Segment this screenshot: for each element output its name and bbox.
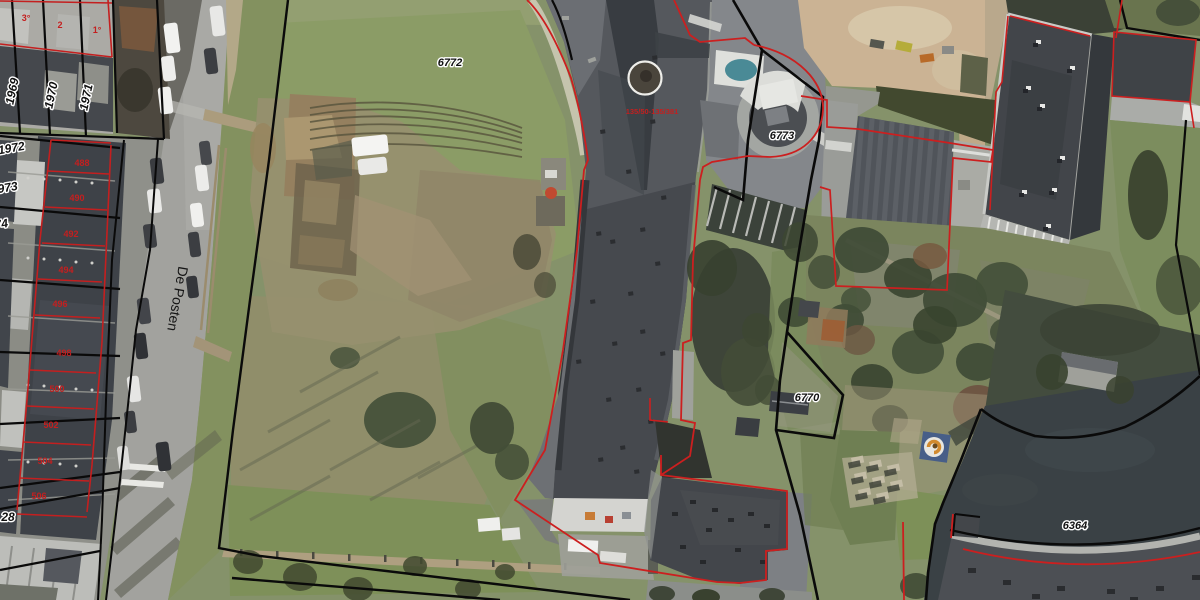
svg-text:1°: 1° xyxy=(93,25,102,35)
svg-text:498: 498 xyxy=(56,348,71,358)
svg-text:3°: 3° xyxy=(22,13,31,23)
svg-text:494: 494 xyxy=(58,265,73,275)
svg-text:6770: 6770 xyxy=(795,392,820,404)
svg-text:502: 502 xyxy=(43,420,58,430)
svg-text:6772: 6772 xyxy=(438,57,462,69)
svg-text:488: 488 xyxy=(74,158,89,168)
svg-text:28: 28 xyxy=(0,510,15,524)
svg-text:492: 492 xyxy=(63,229,78,239)
svg-text:135/50-135/381: 135/50-135/381 xyxy=(626,107,679,116)
svg-text:6364: 6364 xyxy=(1063,520,1087,532)
svg-text:506: 506 xyxy=(31,491,46,501)
svg-text:504: 504 xyxy=(37,456,52,466)
svg-text:6773: 6773 xyxy=(770,130,794,142)
svg-text:496: 496 xyxy=(52,299,67,309)
svg-text:500: 500 xyxy=(49,384,64,394)
svg-text:2: 2 xyxy=(57,20,62,30)
svg-text:490: 490 xyxy=(69,193,84,203)
